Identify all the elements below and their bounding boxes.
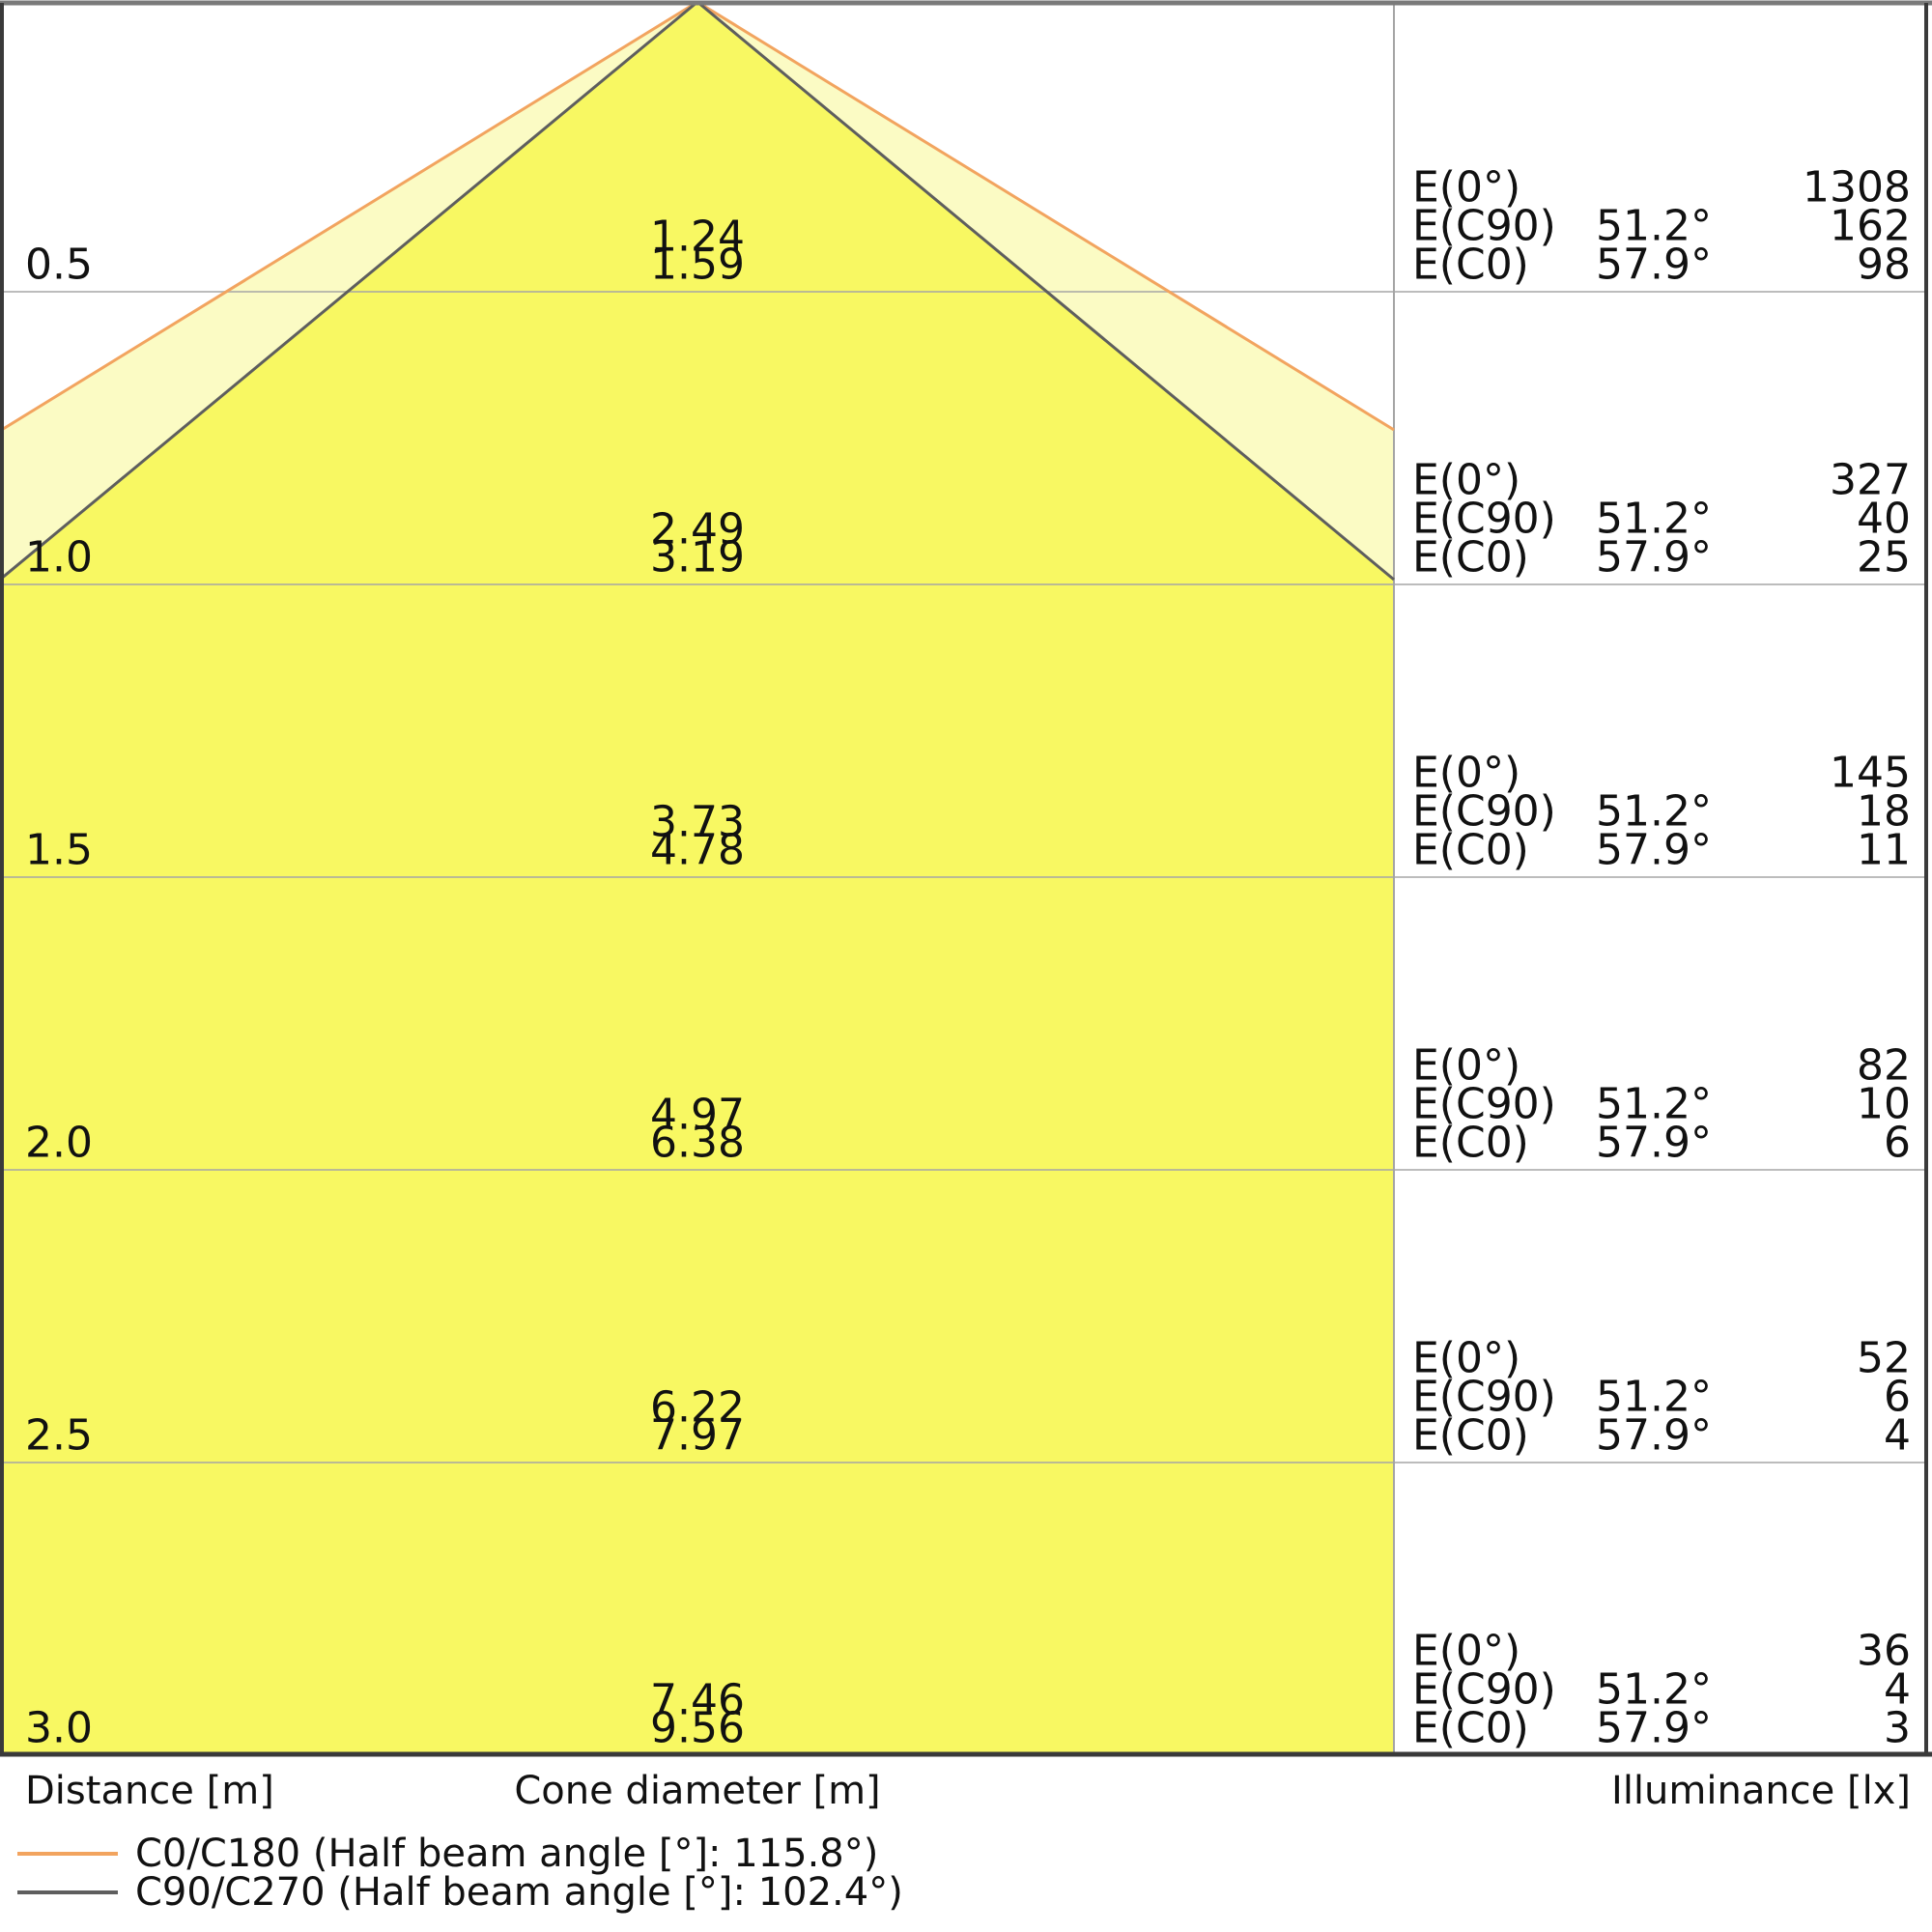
ec0-value-1.5: 11 <box>1729 826 1911 875</box>
ec0-angle-3.0: 57.9° <box>1488 1704 1712 1753</box>
distance-label-2.5: 2.5 <box>25 1411 93 1461</box>
distance-label-1.0: 1.0 <box>25 533 93 582</box>
cone-diameter-axis-label: Cone diameter [m] <box>514 1769 880 1813</box>
distance-label-3.0: 3.0 <box>25 1704 93 1753</box>
legend-line-c0-c180 <box>17 1852 118 1856</box>
illuminance-axis-label: Illuminance [lx] <box>1611 1769 1911 1813</box>
ec0-value-0.5: 98 <box>1729 241 1911 290</box>
ec0-value-2.5: 4 <box>1729 1411 1911 1461</box>
ec0-angle-1.5: 57.9° <box>1488 826 1712 875</box>
ec0-value-3.0: 3 <box>1729 1704 1911 1753</box>
ec0-value-1.0: 25 <box>1729 533 1911 582</box>
cone-diameter-c0-2.0: 6.38 <box>650 1119 745 1168</box>
legend-label-c90-c270: C90/C270 (Half beam angle [°]: 102.4°) <box>135 1870 903 1915</box>
distance-label-2.0: 2.0 <box>25 1119 93 1168</box>
ec0-angle-1.0: 57.9° <box>1488 533 1712 582</box>
cone-diameter-c0-3.0: 9.56 <box>650 1704 745 1753</box>
ec0-value-2.0: 6 <box>1729 1119 1911 1168</box>
distance-label-0.5: 0.5 <box>25 241 93 290</box>
legend-line-c90-c270 <box>17 1890 118 1894</box>
ec0-angle-0.5: 57.9° <box>1488 241 1712 290</box>
distance-label-1.5: 1.5 <box>25 826 93 875</box>
cone-diameter-c0-1.0: 3.19 <box>650 533 745 582</box>
cone-diameter-c0-1.5: 4.78 <box>650 826 745 875</box>
cone-diameter-c0-0.5: 1.59 <box>650 241 745 290</box>
cone-diagram-figure: 0.51.241.59E(0°)1308E(C90)51.2°162E(C0)5… <box>0 0 1932 1932</box>
distance-axis-label: Distance [m] <box>25 1769 274 1813</box>
ec0-angle-2.0: 57.9° <box>1488 1119 1712 1168</box>
ec0-angle-2.5: 57.9° <box>1488 1411 1712 1461</box>
cone-diameter-c0-2.5: 7.97 <box>650 1411 745 1461</box>
